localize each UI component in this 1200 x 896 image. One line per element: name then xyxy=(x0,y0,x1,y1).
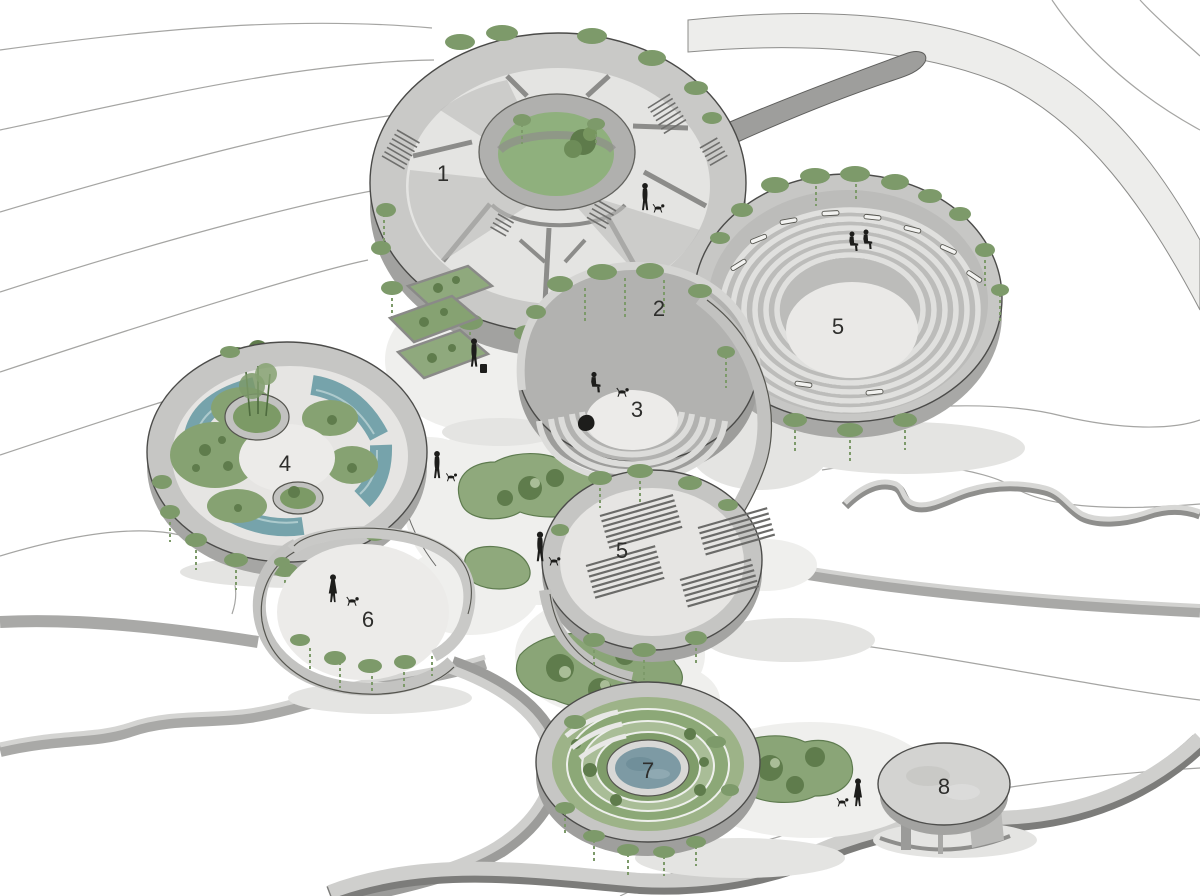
label-4: 4 xyxy=(279,451,291,476)
west-stub-path xyxy=(0,621,258,642)
site-plan-illustration: 1 2 3 4 5 5 6 7 8 xyxy=(0,0,1200,896)
label-5-east: 5 xyxy=(832,314,844,339)
amphitheater-floor xyxy=(786,282,918,378)
axonometric-drawing: 1 2 3 4 5 5 6 7 8 xyxy=(0,0,1200,896)
label-1: 1 xyxy=(437,161,449,186)
label-8: 8 xyxy=(938,774,950,799)
label-6: 6 xyxy=(362,607,374,632)
label-5-central: 5 xyxy=(616,538,628,563)
label-3: 3 xyxy=(631,397,643,422)
ramp-to-upper-path xyxy=(716,52,926,145)
luggage-icon xyxy=(480,364,487,373)
small-planter xyxy=(273,482,323,514)
meander-wall-path-dark xyxy=(845,485,1200,522)
label-2: 2 xyxy=(653,296,665,321)
label-7: 7 xyxy=(642,758,654,783)
